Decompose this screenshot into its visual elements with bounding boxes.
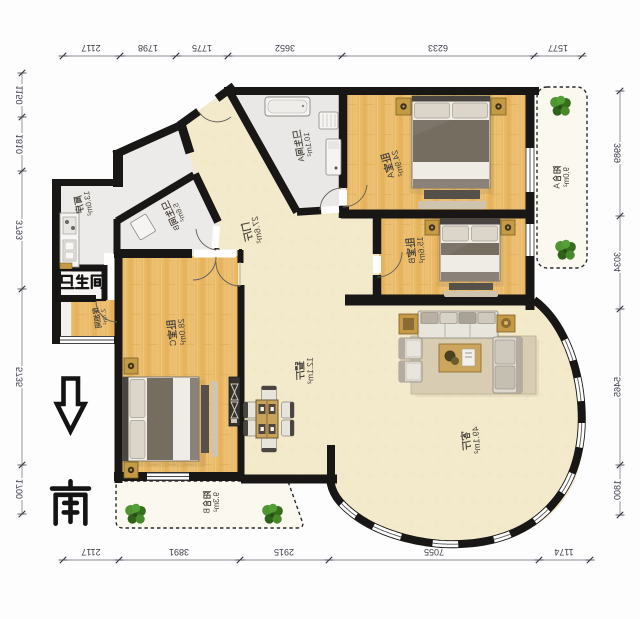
svg-text:3652: 3652 (275, 43, 295, 53)
svg-text:3034: 3034 (612, 252, 622, 272)
svg-text:1577: 1577 (548, 43, 568, 53)
svg-text:3989: 3989 (612, 143, 622, 163)
svg-text:1174: 1174 (554, 547, 573, 557)
svg-text:B: B (407, 257, 418, 264)
svg-text:B: B (203, 508, 212, 514)
svg-text:5465: 5465 (612, 377, 622, 397)
svg-text:12.1m²: 12.1m² (305, 357, 316, 384)
svg-text:1700: 1700 (14, 479, 24, 499)
svg-text:2117: 2117 (81, 547, 100, 557)
svg-text:9.3m²: 9.3m² (212, 492, 221, 512)
svg-text:7055: 7055 (424, 547, 444, 557)
svg-text:2915: 2915 (274, 547, 294, 557)
svg-text:1150: 1150 (14, 85, 24, 104)
svg-text:3891: 3891 (169, 547, 189, 557)
svg-text:1775: 1775 (192, 43, 212, 53)
svg-text:5735: 5735 (14, 367, 24, 387)
svg-text:9.0m²: 9.0m² (562, 167, 571, 187)
svg-text:1800: 1800 (612, 480, 622, 500)
svg-text:3793: 3793 (14, 220, 24, 240)
svg-text:6233: 6233 (428, 43, 448, 53)
svg-text:1798: 1798 (138, 43, 158, 53)
svg-text:2117: 2117 (81, 43, 100, 53)
svg-text:1810: 1810 (14, 134, 24, 154)
svg-text:A: A (553, 183, 562, 189)
